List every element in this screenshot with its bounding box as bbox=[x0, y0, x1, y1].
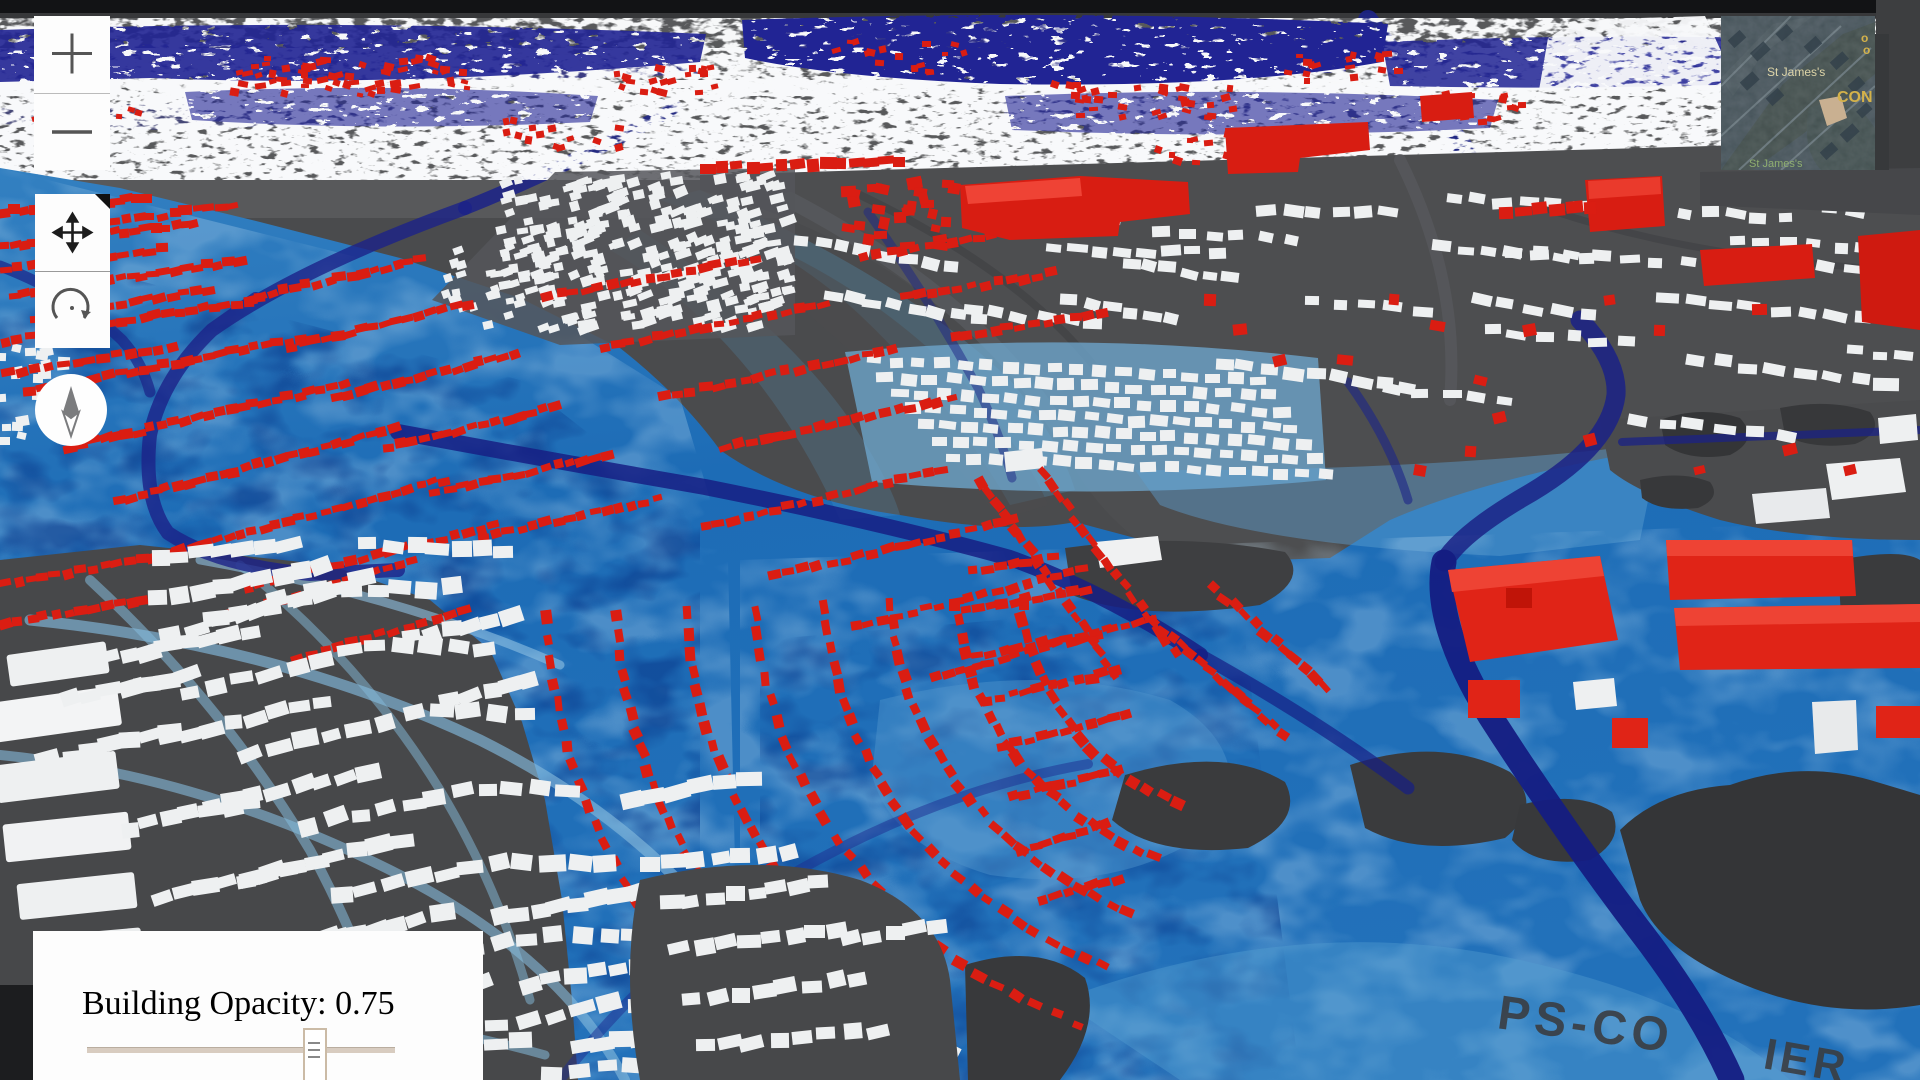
svg-text:St James's: St James's bbox=[1767, 65, 1825, 79]
svg-text:CON: CON bbox=[1837, 89, 1873, 106]
svg-text:St James's: St James's bbox=[1749, 158, 1803, 170]
svg-text:o: o bbox=[1863, 43, 1870, 57]
